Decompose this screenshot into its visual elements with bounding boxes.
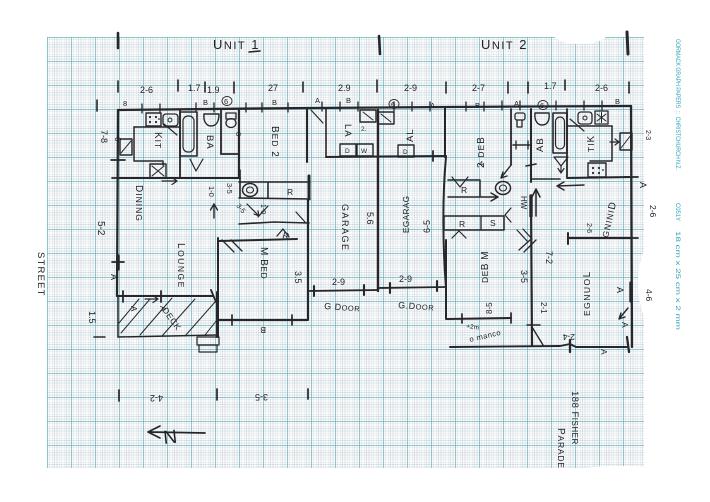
svg-text:GARAGE: GARAGE bbox=[340, 204, 350, 252]
svg-text:G DOOR: G DOOR bbox=[324, 301, 361, 313]
svg-text:D: D bbox=[403, 149, 408, 156]
svg-text:UNIT 1: UNIT 1 bbox=[213, 37, 260, 52]
svg-text:2.9: 2.9 bbox=[338, 83, 351, 93]
svg-text:N: N bbox=[162, 427, 178, 449]
svg-text:EGNUOL: EGNUOL bbox=[582, 270, 593, 316]
svg-text:188 FISHER: 188 FISHER bbox=[569, 391, 580, 445]
svg-text:4: 4 bbox=[479, 159, 483, 168]
svg-text:DEB M: DEB M bbox=[480, 251, 491, 283]
svg-text:2-6: 2-6 bbox=[140, 85, 153, 95]
svg-text:S: S bbox=[490, 218, 496, 228]
svg-text:G.DOOR: G.DOOR bbox=[398, 300, 435, 312]
svg-text:KIT: KIT bbox=[152, 132, 163, 149]
svg-text:27: 27 bbox=[268, 83, 278, 93]
svg-text:AL: AL bbox=[405, 128, 416, 142]
svg-text:R: R bbox=[459, 219, 465, 229]
svg-text:2-9: 2-9 bbox=[399, 274, 412, 284]
svg-text:2-4: 2-4 bbox=[562, 332, 575, 342]
svg-text:LA: LA bbox=[342, 124, 353, 138]
svg-text:M BED: M BED bbox=[258, 247, 269, 279]
svg-text:B: B bbox=[346, 96, 351, 105]
svg-text:AB: AB bbox=[535, 137, 546, 152]
svg-text:2-9: 2-9 bbox=[332, 277, 345, 287]
svg-text:PARADE: PARADE bbox=[555, 428, 566, 469]
svg-text:2-9: 2-9 bbox=[404, 83, 417, 93]
svg-text:3-5: 3-5 bbox=[255, 392, 268, 402]
svg-text:A: A bbox=[430, 101, 435, 110]
svg-text:2-6: 2-6 bbox=[585, 223, 592, 233]
svg-text:C051Y: C051Y bbox=[674, 203, 681, 221]
svg-text:5.6: 5.6 bbox=[365, 212, 375, 225]
svg-text:7-8: 7-8 bbox=[99, 130, 109, 143]
svg-text:TIK: TIK bbox=[586, 135, 597, 152]
svg-text:2-3: 2-3 bbox=[644, 130, 651, 140]
svg-text:18 cm x 25 cm x 2 mm: 18 cm x 25 cm x 2 mm bbox=[674, 231, 681, 330]
svg-text:1.7: 1.7 bbox=[188, 83, 201, 93]
svg-text:W: W bbox=[361, 148, 368, 155]
svg-text:2.: 2. bbox=[361, 126, 367, 133]
svg-text:STREET: STREET bbox=[35, 252, 46, 297]
svg-text:BA: BA bbox=[204, 135, 215, 150]
svg-text:EGARAG: EGARAG bbox=[402, 196, 411, 233]
svg-text:A: A bbox=[315, 96, 320, 105]
svg-text:3-5: 3-5 bbox=[519, 270, 529, 283]
svg-text:UNIT 2: UNIT 2 bbox=[481, 37, 528, 52]
svg-text:A: A bbox=[638, 182, 648, 188]
svg-text:1.5: 1.5 bbox=[87, 311, 97, 324]
svg-text:A: A bbox=[620, 322, 630, 328]
svg-text:3-5: 3-5 bbox=[225, 183, 234, 194]
svg-text:1.9: 1.9 bbox=[207, 85, 220, 95]
svg-text:4-6: 4-6 bbox=[644, 289, 654, 302]
svg-text:DINING: DINING bbox=[133, 185, 144, 222]
svg-text:D: D bbox=[345, 148, 350, 155]
svg-text:4-2: 4-2 bbox=[150, 393, 163, 403]
svg-text:2-1: 2-1 bbox=[539, 302, 548, 314]
svg-text:6-5: 6-5 bbox=[422, 220, 432, 233]
svg-text:A: A bbox=[599, 349, 609, 355]
svg-text:3.5: 3.5 bbox=[293, 271, 303, 284]
svg-text:8-5: 8-5 bbox=[485, 302, 494, 314]
svg-text:8: 8 bbox=[123, 99, 127, 108]
svg-text:B: B bbox=[203, 98, 208, 107]
svg-text:BED 2: BED 2 bbox=[269, 126, 280, 158]
svg-text:A: A bbox=[109, 274, 119, 280]
svg-text:6: 6 bbox=[113, 137, 122, 142]
svg-text:B: B bbox=[615, 97, 620, 106]
svg-text:R: R bbox=[461, 185, 467, 195]
svg-text:1-0: 1-0 bbox=[259, 204, 266, 214]
svg-text:R: R bbox=[287, 187, 293, 197]
svg-text:A: A bbox=[615, 287, 625, 293]
svg-text:LOUNGE: LOUNGE bbox=[175, 243, 186, 289]
svg-text:GORMACK GRAPH PAPERS :: CHRI: GORMACK GRAPH PAPERS :: CHRISTCHURCH N.Z… bbox=[674, 39, 681, 170]
svg-text:3-5: 3-5 bbox=[234, 203, 246, 215]
svg-text:B: B bbox=[475, 101, 480, 110]
svg-text:DECK: DECK bbox=[160, 305, 183, 332]
svg-text:5-2: 5-2 bbox=[95, 221, 106, 236]
svg-text:GNINID: GNINID bbox=[600, 200, 619, 238]
svg-text:1-0: 1-0 bbox=[207, 186, 216, 197]
svg-text:B: B bbox=[272, 98, 277, 107]
svg-text:2-7: 2-7 bbox=[472, 83, 485, 93]
svg-text:B: B bbox=[260, 325, 266, 335]
svg-text:2-6: 2-6 bbox=[595, 83, 608, 93]
svg-text:2-6: 2-6 bbox=[648, 205, 658, 218]
svg-text:7-2: 7-2 bbox=[544, 251, 554, 264]
svg-text:HW: HW bbox=[519, 196, 528, 210]
svg-text:1.7: 1.7 bbox=[544, 81, 557, 91]
svg-text:+2m: +2m bbox=[466, 323, 480, 332]
